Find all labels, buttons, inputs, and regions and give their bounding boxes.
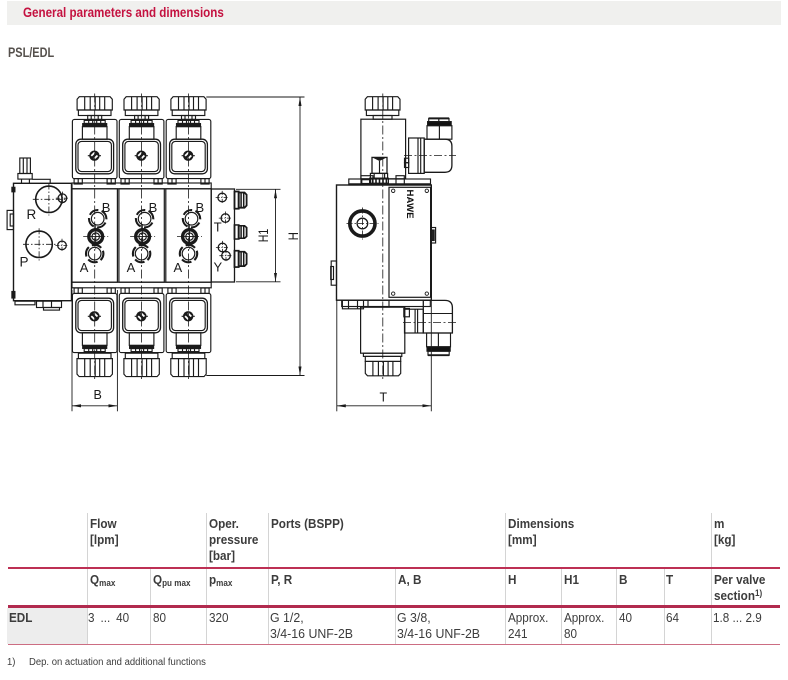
- svg-text:R: R: [27, 207, 37, 222]
- svg-text:H: H: [286, 232, 301, 240]
- svg-text:T: T: [380, 391, 388, 405]
- svg-text:T: T: [214, 219, 222, 234]
- svg-text:P: P: [20, 255, 29, 270]
- svg-text:HAWE: HAWE: [404, 190, 415, 219]
- svg-text:B: B: [94, 388, 102, 402]
- svg-text:Y: Y: [214, 260, 223, 275]
- svg-text:H1: H1: [256, 229, 272, 243]
